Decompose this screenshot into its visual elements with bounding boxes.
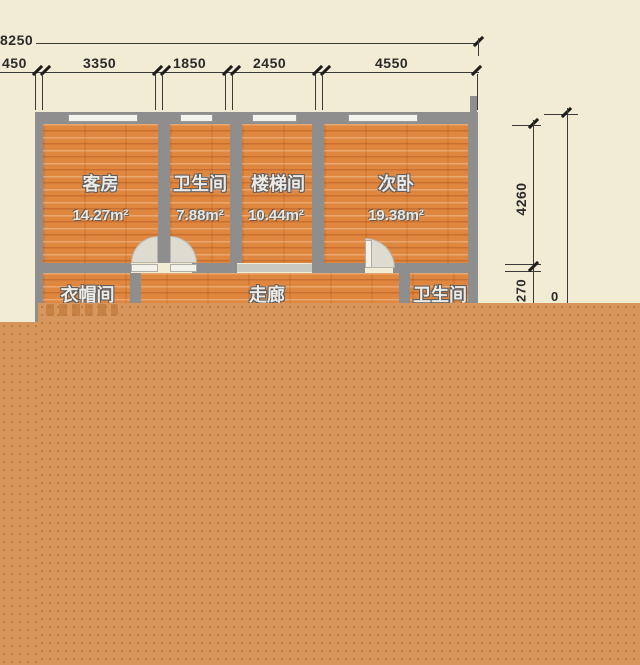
- window-second-bedroom: [348, 114, 418, 122]
- room-area-second-bedroom: 19.38m²: [324, 207, 468, 224]
- floor-plan-canvas: 8250 450 3350 1850 2450 4550 0 4260 270: [0, 0, 640, 665]
- dim-line-right-inner: [533, 120, 534, 320]
- dim-right-4260: 4260: [513, 169, 529, 229]
- dim-extension: [155, 74, 163, 110]
- dim-seg-4550: 4550: [375, 55, 408, 71]
- room-label-stairwell: 楼梯间: [234, 170, 322, 196]
- window-guest-room: [68, 114, 138, 122]
- dim-seg-3350: 3350: [83, 55, 116, 71]
- wall-opening-corridor: [237, 264, 312, 272]
- window-stairwell: [252, 114, 297, 122]
- dim-overall-width: 8250: [0, 32, 33, 48]
- wall-corridor: [43, 263, 131, 273]
- dim-seg-1850: 1850: [173, 55, 206, 71]
- door-leaf-guest-room: [131, 264, 158, 272]
- wall-corridor: [312, 263, 365, 273]
- dim-extension: [478, 38, 479, 56]
- dim-extension: [35, 74, 43, 110]
- dim-line-right-outer: [567, 108, 568, 320]
- room-area-guest-room: 14.27m²: [43, 207, 158, 224]
- ghost-text-smudge: [46, 304, 118, 316]
- room-area-stairwell: 10.44m²: [230, 207, 322, 224]
- dim-seg-2450: 2450: [253, 55, 286, 71]
- wall-corridor: [192, 263, 237, 273]
- orange-occlusion-block: [38, 303, 640, 665]
- door-leaf-bathroom: [170, 264, 197, 272]
- orange-occlusion-block-left: [0, 322, 38, 665]
- room-label-second-bedroom: 次卧: [324, 170, 468, 196]
- dim-line-overall: [36, 43, 479, 44]
- room-label-guest-room: 客房: [43, 170, 158, 196]
- door-leaf-second-bedroom: [365, 240, 372, 268]
- dim-extension: [477, 74, 478, 110]
- dim-extension: [315, 74, 323, 110]
- dim-line-segments: [0, 72, 479, 73]
- dim-bar: [512, 125, 541, 126]
- window-bathroom: [180, 114, 213, 122]
- dim-right-outer-partial: 0: [551, 289, 559, 304]
- dim-extension: [225, 74, 233, 110]
- dim-seg-450: 450: [2, 55, 27, 71]
